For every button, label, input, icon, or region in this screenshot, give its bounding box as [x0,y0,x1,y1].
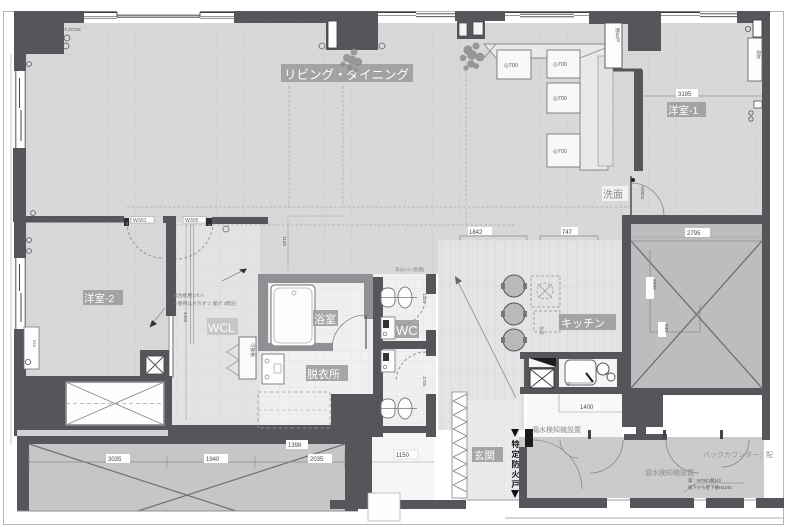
svg-text:漏水検知機設置: 漏水検知機設置 [532,425,581,434]
svg-text:洋室-1: 洋室-1 [668,104,698,117]
svg-text:◎700: ◎700 [553,96,567,102]
svg-text:食洗: 食洗 [538,326,545,335]
svg-text:漏水検知機設置: 漏水検知機設置 [645,468,694,477]
svg-text:◎700: ◎700 [553,149,567,155]
svg-text:845: 845 [663,324,669,332]
svg-text:棚43戸: 棚43戸 [614,28,621,43]
svg-text:◎700: ◎700 [504,63,518,69]
svg-text:玄関: 玄関 [474,449,495,462]
svg-text:WC: WC [396,323,418,338]
svg-text:1842: 1842 [469,230,483,236]
svg-text:2795: 2795 [687,231,701,237]
svg-text:1150: 1150 [396,453,410,459]
svg-text:帯分ﾒｰﾀｰ(無機): 帯分ﾒｰﾀｰ(無機) [395,266,425,273]
svg-text:◎700: ◎700 [553,62,567,68]
svg-text:1398: 1398 [288,443,302,449]
svg-text:915: 915 [32,340,37,348]
svg-text:バックカウンター：配: バックカウンター：配 [703,450,773,459]
svg-text:廊下から壁下横H2240: 廊下から壁下横H2240 [688,484,732,491]
svg-text:747: 747 [562,230,573,236]
svg-text:WCL: WCL [208,321,235,335]
svg-text:キッチン: キッチン [561,317,605,330]
svg-text:収納: 収納 [755,50,762,59]
svg-text:複合機用ｺﾝｾﾝﾄ: 複合機用ｺﾝｾﾝﾄ [173,292,205,299]
svg-text:洋室-2: 洋室-2 [84,292,114,305]
svg-text:W0/02: W0/02 [640,186,645,200]
svg-text:リビング・ダイニング: リビング・ダイニング [284,67,409,82]
svg-text:W301: W301 [133,218,147,224]
svg-text:3035: 3035 [108,457,122,463]
svg-text:脱衣所: 脱衣所 [307,367,340,381]
svg-text:1940: 1940 [206,457,220,463]
svg-text:W305: W305 [185,218,199,224]
svg-text:1198: 1198 [282,236,287,246]
svg-text:洗面: 洗面 [603,189,623,201]
svg-text:3195: 3195 [678,92,692,98]
svg-text:2035: 2035 [310,457,324,463]
svg-text:可動棚: 可動棚 [249,343,256,357]
svg-text:浴室: 浴室 [314,312,336,326]
svg-text:2250: 2250 [651,279,657,290]
svg-text:※使用は片方ずつ 差げ 3階記: ※使用は片方ずつ 差げ 3階記 [173,300,236,307]
svg-text:1F.ZONE: 1F.ZONE [62,27,81,32]
svg-text:1785: 1785 [422,376,427,387]
svg-text:1400: 1400 [580,405,594,411]
svg-text:4363: 4363 [183,312,188,323]
